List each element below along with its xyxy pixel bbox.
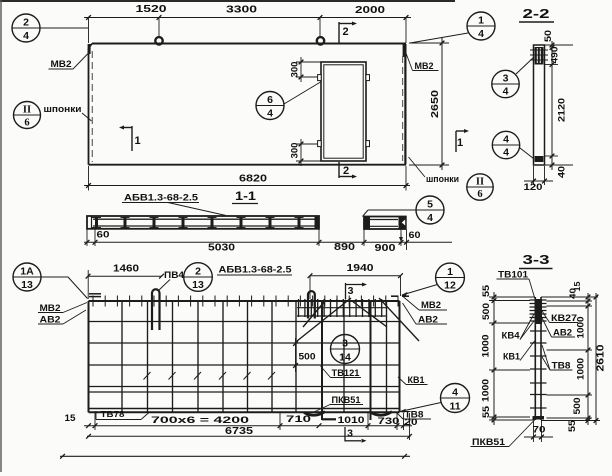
svg-text:АБВ1.3-68-2.5: АБВ1.3-68-2.5 (124, 193, 199, 204)
svg-text:3: 3 (348, 285, 354, 297)
svg-text:1940: 1940 (347, 263, 375, 274)
svg-text:1000: 1000 (576, 358, 587, 380)
svg-text:300: 300 (290, 62, 301, 78)
svg-text:2: 2 (23, 16, 29, 28)
svg-text:1А: 1А (20, 265, 34, 277)
svg-text:1: 1 (457, 137, 463, 149)
svg-text:6: 6 (24, 117, 29, 128)
svg-text:1-1: 1-1 (235, 191, 257, 203)
svg-text:3: 3 (503, 72, 509, 84)
svg-text:300: 300 (290, 143, 301, 159)
svg-text:II: II (476, 176, 484, 187)
svg-text:3: 3 (342, 337, 348, 349)
svg-text:4: 4 (267, 107, 273, 119)
svg-text:1010: 1010 (338, 415, 365, 426)
svg-text:шпонки: шпонки (426, 174, 459, 185)
svg-text:40: 40 (568, 288, 578, 299)
svg-text:15: 15 (65, 413, 76, 423)
svg-text:20: 20 (405, 417, 418, 427)
svg-text:шпонки: шпонки (44, 104, 82, 115)
svg-text:4: 4 (503, 147, 509, 159)
svg-text:1: 1 (478, 14, 484, 26)
svg-text:730: 730 (378, 416, 400, 427)
svg-text:700x6 = 4200: 700x6 = 4200 (151, 415, 249, 426)
svg-text:500: 500 (572, 398, 583, 415)
svg-text:4: 4 (23, 30, 29, 42)
svg-text:КВ1: КВ1 (503, 352, 521, 363)
svg-text:2: 2 (195, 265, 201, 277)
svg-text:710: 710 (286, 414, 311, 425)
svg-text:5030: 5030 (208, 243, 236, 254)
svg-text:11: 11 (449, 400, 460, 412)
svg-text:900: 900 (375, 243, 397, 254)
svg-text:6: 6 (267, 94, 273, 106)
svg-text:500: 500 (481, 303, 491, 320)
svg-text:14: 14 (339, 351, 351, 363)
svg-text:12: 12 (444, 280, 456, 292)
svg-text:120: 120 (524, 182, 543, 193)
svg-text:60: 60 (409, 230, 421, 241)
svg-text:2: 2 (342, 26, 348, 38)
svg-text:4: 4 (503, 133, 509, 145)
svg-text:ТВ78: ТВ78 (101, 409, 125, 419)
svg-text:1: 1 (447, 266, 453, 278)
svg-text:1000: 1000 (481, 379, 492, 402)
svg-text:1000: 1000 (481, 335, 492, 358)
svg-text:55: 55 (567, 420, 577, 432)
svg-text:КВ4: КВ4 (502, 331, 521, 342)
svg-text:II: II (23, 104, 31, 115)
svg-text:МВ2: МВ2 (51, 59, 72, 70)
svg-text:3-3: 3-3 (523, 253, 550, 267)
svg-text:5: 5 (427, 198, 433, 210)
svg-text:6: 6 (477, 189, 482, 200)
svg-text:70: 70 (533, 425, 546, 436)
svg-text:ПВ4: ПВ4 (164, 270, 185, 281)
svg-text:2120: 2120 (557, 98, 568, 122)
svg-text:1000: 1000 (576, 317, 587, 339)
svg-text:55: 55 (481, 285, 491, 297)
svg-text:2000: 2000 (355, 5, 386, 16)
svg-text:1460: 1460 (113, 264, 140, 275)
svg-text:55: 55 (481, 406, 491, 418)
svg-text:490: 490 (550, 47, 560, 64)
svg-text:4: 4 (503, 86, 509, 98)
svg-text:2650: 2650 (430, 89, 441, 118)
svg-text:3: 3 (347, 428, 353, 440)
svg-text:6820: 6820 (239, 174, 268, 185)
svg-text:6735: 6735 (225, 426, 254, 437)
svg-text:890: 890 (334, 242, 356, 253)
svg-text:40: 40 (557, 166, 567, 178)
svg-text:4: 4 (452, 386, 458, 398)
svg-text:2610: 2610 (596, 344, 607, 372)
svg-text:4: 4 (478, 28, 484, 40)
svg-text:МВ2: МВ2 (421, 300, 441, 311)
svg-text:50: 50 (543, 30, 553, 42)
svg-text:2-2: 2-2 (523, 7, 550, 21)
svg-text:АБВ1.3-68-2.5: АБВ1.3-68-2.5 (219, 265, 293, 276)
svg-text:500: 500 (299, 352, 316, 363)
svg-text:13: 13 (21, 279, 33, 291)
svg-text:1520: 1520 (136, 4, 168, 15)
svg-text:4: 4 (427, 212, 433, 224)
svg-text:3300: 3300 (226, 5, 258, 16)
svg-text:1: 1 (134, 135, 140, 147)
svg-text:60: 60 (97, 230, 110, 241)
svg-text:13: 13 (192, 279, 204, 291)
svg-text:2: 2 (343, 165, 349, 177)
